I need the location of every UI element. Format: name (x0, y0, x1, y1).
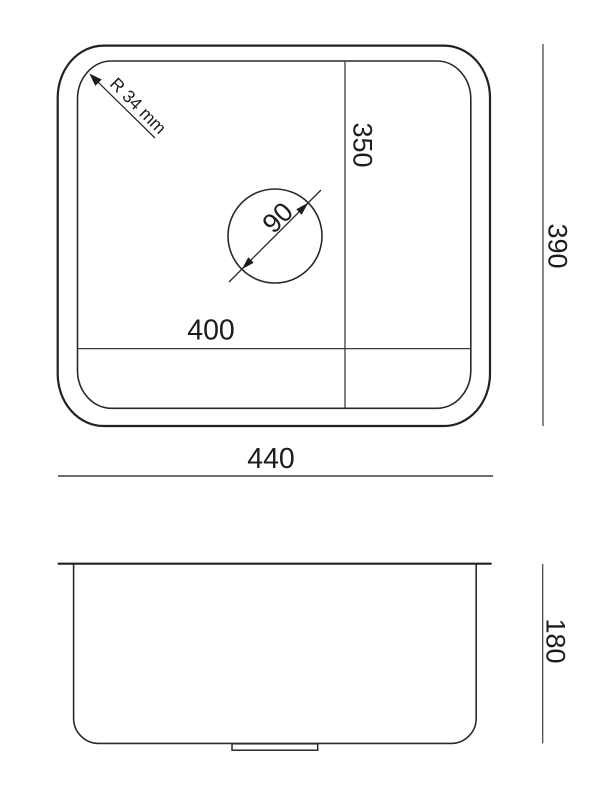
svg-text:350: 350 (348, 122, 378, 167)
svg-text:400: 400 (187, 315, 235, 347)
svg-text:440: 440 (247, 443, 295, 475)
svg-text:390: 390 (543, 223, 573, 268)
svg-text:180: 180 (541, 618, 571, 663)
